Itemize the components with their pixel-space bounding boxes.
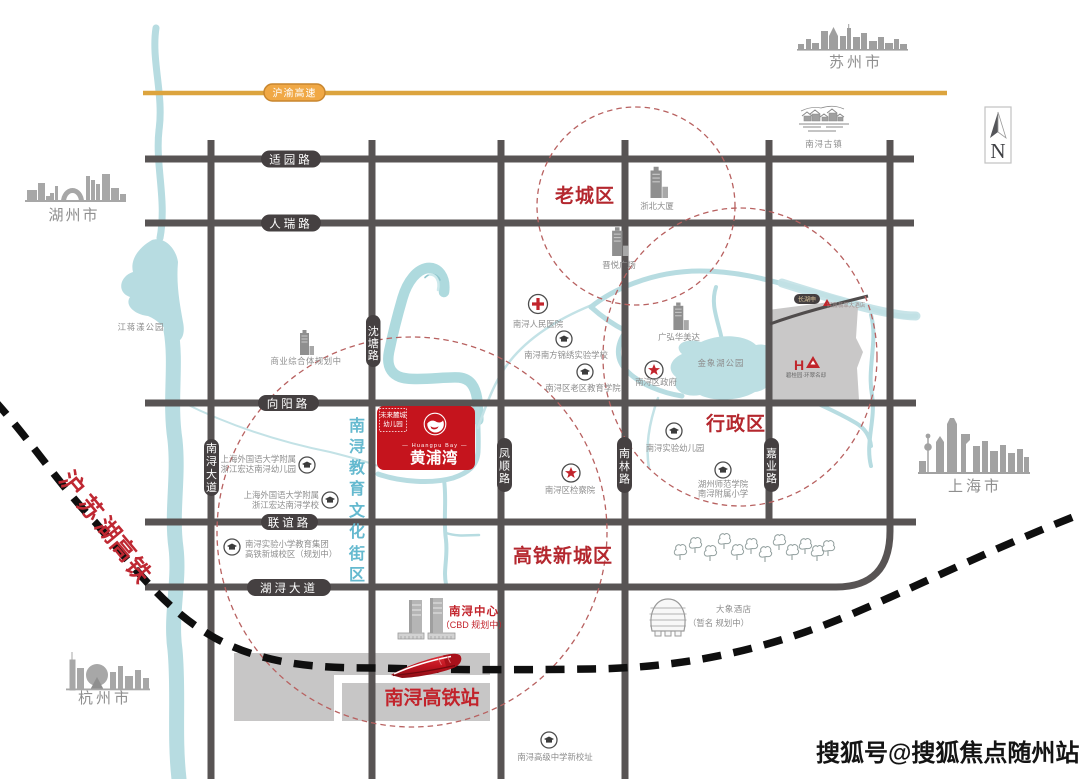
svg-text:长湖申: 长湖申: [798, 296, 816, 304]
svg-text:沪渝高速: 沪渝高速: [273, 87, 317, 100]
svg-text:H: H: [794, 357, 804, 373]
svg-text:浙江宏达南浔幼儿园: 浙江宏达南浔幼儿园: [221, 464, 296, 474]
svg-text:塘: 塘: [368, 336, 379, 350]
svg-text:南浔人民医院: 南浔人民医院: [513, 319, 564, 329]
svg-text:浙江宏达南浔学校: 浙江宏达南浔学校: [252, 500, 320, 510]
svg-text:南浔附属小学: 南浔附属小学: [698, 489, 748, 499]
svg-text:湖州师范学院: 湖州师范学院: [698, 479, 749, 489]
svg-text:嘉: 嘉: [766, 446, 777, 460]
svg-text:向阳路: 向阳路: [267, 397, 311, 411]
svg-text:联谊路: 联谊路: [268, 516, 312, 530]
svg-text:晋悦广场: 晋悦广场: [602, 260, 636, 270]
svg-text:南: 南: [619, 447, 630, 460]
svg-text:路: 路: [766, 472, 777, 485]
svg-text:育: 育: [349, 479, 365, 498]
svg-text:— Huangpu Bay —: — Huangpu Bay —: [402, 443, 467, 449]
svg-text:南: 南: [349, 416, 365, 435]
svg-text:路: 路: [368, 349, 379, 362]
svg-text:（CBD 规划中）: （CBD 规划中）: [441, 619, 508, 630]
svg-text:兴鑫翡翠大酒店: 兴鑫翡翠大酒店: [827, 301, 866, 309]
svg-text:高铁新城校区（规划中）: 高铁新城校区（规划中）: [245, 549, 337, 559]
svg-text:路: 路: [619, 473, 630, 486]
svg-text:苏州市: 苏州市: [829, 54, 883, 71]
svg-text:上海市: 上海市: [948, 478, 1002, 495]
svg-text:碧桂园·环翠名邸: 碧桂园·环翠名邸: [786, 371, 827, 379]
svg-text:大: 大: [206, 467, 217, 481]
svg-text:南浔区老区教育学院: 南浔区老区教育学院: [545, 383, 621, 393]
svg-text:南浔南方锦绣实验学校: 南浔南方锦绣实验学校: [524, 350, 608, 360]
svg-text:浔: 浔: [206, 455, 217, 468]
svg-text:N: N: [990, 139, 1005, 163]
svg-text:街: 街: [348, 544, 365, 563]
svg-text:南浔区政府: 南浔区政府: [635, 377, 677, 387]
svg-text:行政区: 行政区: [705, 412, 766, 435]
svg-text:南浔实验小学教育集团: 南浔实验小学教育集团: [245, 539, 329, 549]
svg-text:上海外国语大学附属: 上海外国语大学附属: [221, 454, 296, 464]
svg-text:教: 教: [349, 458, 366, 477]
svg-text:金象湖公园: 金象湖公园: [698, 358, 745, 368]
svg-text:江蒋漾公园: 江蒋漾公园: [118, 322, 165, 332]
svg-text:化: 化: [349, 522, 365, 541]
svg-text:业: 业: [766, 460, 777, 473]
svg-text:幼儿园: 幼儿园: [383, 419, 403, 428]
svg-text:上海外国语大学附属: 上海外国语大学附属: [244, 490, 319, 500]
svg-text:林: 林: [619, 459, 630, 473]
svg-text:道: 道: [206, 480, 217, 494]
svg-text:南: 南: [206, 442, 217, 455]
svg-text:南浔古镇: 南浔古镇: [805, 139, 843, 149]
svg-text:人瑞路: 人瑞路: [269, 217, 313, 231]
svg-text:南浔区检察院: 南浔区检察院: [545, 485, 596, 495]
svg-text:搜狐号@搜狐焦点随州站: 搜狐号@搜狐焦点随州站: [816, 739, 1079, 767]
svg-text:大象酒店: 大象酒店: [716, 604, 752, 614]
svg-text:南浔中心: 南浔中心: [449, 604, 499, 618]
svg-text:广弘华美达: 广弘华美达: [658, 332, 700, 342]
svg-text:湖州市: 湖州市: [48, 207, 99, 224]
svg-text:路: 路: [499, 472, 510, 485]
svg-text:杭州市: 杭州市: [78, 690, 132, 707]
svg-text:商业综合体规划中: 商业综合体规划中: [271, 356, 342, 366]
svg-text:南浔实验幼儿园: 南浔实验幼儿园: [646, 443, 705, 453]
svg-text:顺: 顺: [499, 460, 510, 473]
svg-text:文: 文: [349, 501, 366, 520]
svg-text:适园路: 适园路: [269, 153, 313, 167]
svg-text:南浔高级中学新校址: 南浔高级中学新校址: [517, 752, 593, 762]
svg-text:浙北大厦: 浙北大厦: [640, 201, 674, 211]
svg-text:（暂名 规划中）: （暂名 规划中）: [688, 618, 749, 628]
svg-text:未来麓城: 未来麓城: [380, 410, 407, 419]
svg-text:老城区: 老城区: [555, 184, 615, 207]
svg-text:沈: 沈: [368, 324, 379, 338]
svg-text:区: 区: [349, 566, 365, 584]
svg-text:凤: 凤: [499, 447, 510, 460]
svg-text:湖浔大道: 湖浔大道: [260, 581, 318, 595]
svg-text:浔: 浔: [348, 437, 365, 456]
svg-text:高铁新城区: 高铁新城区: [513, 544, 613, 567]
svg-text:黄浦湾: 黄浦湾: [410, 448, 458, 467]
svg-text:南浔高铁站: 南浔高铁站: [384, 686, 479, 709]
